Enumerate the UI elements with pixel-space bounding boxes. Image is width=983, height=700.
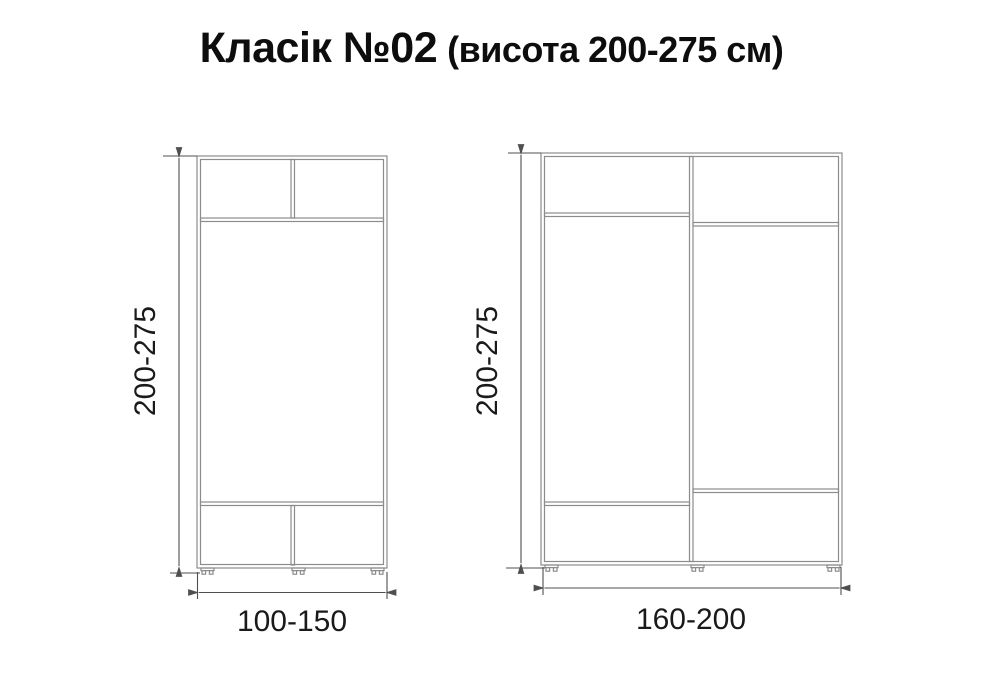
right-wardrobe-inner-outline — [545, 157, 839, 562]
left-width-dimension: 100-150 — [198, 572, 388, 638]
right-right-section-top-shelf — [693, 223, 839, 227]
right-width-dimension: 160-200 — [543, 567, 841, 636]
right-right-section-bottom-shelf — [693, 489, 839, 493]
right-wardrobe-foot-center — [691, 565, 704, 571]
left-bottom-divider — [291, 506, 295, 566]
left-wardrobe-foot-right — [371, 568, 384, 574]
right-wardrobe-outline — [541, 153, 842, 565]
right-wardrobe-foot-left — [545, 565, 558, 571]
right-wardrobe-drawing — [541, 153, 842, 571]
right-center-divider — [690, 157, 694, 562]
right-width-dimension-label: 160-200 — [636, 603, 746, 636]
left-wardrobe-drawing — [197, 156, 387, 574]
right-left-section-top-shelf — [545, 213, 690, 217]
left-wardrobe-foot-center — [292, 568, 305, 574]
page: Класік №02(висота 200-275 см) — [0, 0, 983, 700]
right-left-section-bottom-shelf — [545, 502, 690, 506]
left-wardrobe-inner-outline — [201, 160, 384, 565]
right-wardrobe-foot-right — [827, 565, 840, 571]
left-height-dimension: 200-275 — [129, 156, 200, 573]
left-top-divider — [291, 160, 295, 219]
left-wardrobe-foot-left — [201, 568, 214, 574]
wardrobe-diagram: 200-275 100-150 — [0, 0, 983, 700]
left-width-dimension-label: 100-150 — [237, 605, 347, 638]
right-height-dimension: 200-275 — [471, 153, 545, 568]
right-height-dimension-label: 200-275 — [471, 306, 504, 416]
left-height-dimension-label: 200-275 — [129, 306, 162, 416]
